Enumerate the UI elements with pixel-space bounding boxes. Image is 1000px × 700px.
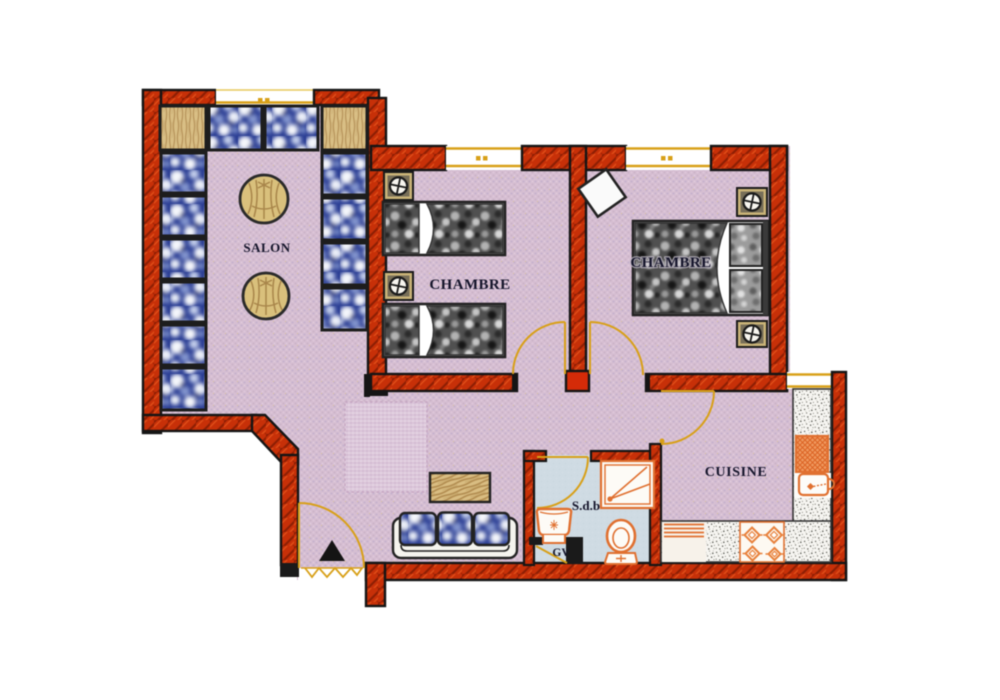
svg-text:CUISINE: CUISINE: [705, 465, 768, 480]
svg-text:CHAMBRE: CHAMBRE: [429, 277, 510, 293]
svg-text:S.d.b: S.d.b: [572, 498, 600, 513]
svg-text:CHAMBRE: CHAMBRE: [630, 255, 711, 271]
svg-text:GV: GV: [552, 547, 570, 559]
svg-text:SALON: SALON: [243, 240, 290, 255]
